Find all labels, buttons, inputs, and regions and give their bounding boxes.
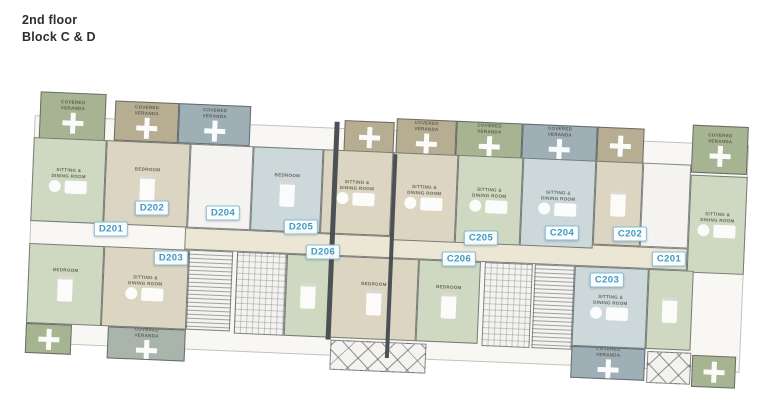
floor-plan: COVERED VERANDACOVERED VERANDACOVERED VE… <box>0 0 768 415</box>
unit-badge-C204[interactable]: C204 <box>545 226 579 241</box>
unit-badge-D202[interactable]: D202 <box>135 201 169 216</box>
unit-badge-C203[interactable]: C203 <box>590 273 624 288</box>
floor-plan-page: 2nd floor Block C & D COVERED VERANDACOV… <box>0 0 768 415</box>
unit-badge-layer: D201D202D203D204D205D206C205C206C204C202… <box>0 0 768 415</box>
unit-badge-C201[interactable]: C201 <box>652 252 686 267</box>
unit-badge-D203[interactable]: D203 <box>154 251 188 266</box>
unit-badge-C205[interactable]: C205 <box>464 231 498 246</box>
unit-badge-D204[interactable]: D204 <box>206 206 240 221</box>
unit-badge-C202[interactable]: C202 <box>613 227 647 242</box>
unit-badge-D205[interactable]: D205 <box>284 220 318 235</box>
unit-badge-D201[interactable]: D201 <box>94 222 128 237</box>
unit-badge-D206[interactable]: D206 <box>306 245 340 260</box>
unit-badge-C206[interactable]: C206 <box>442 252 476 267</box>
